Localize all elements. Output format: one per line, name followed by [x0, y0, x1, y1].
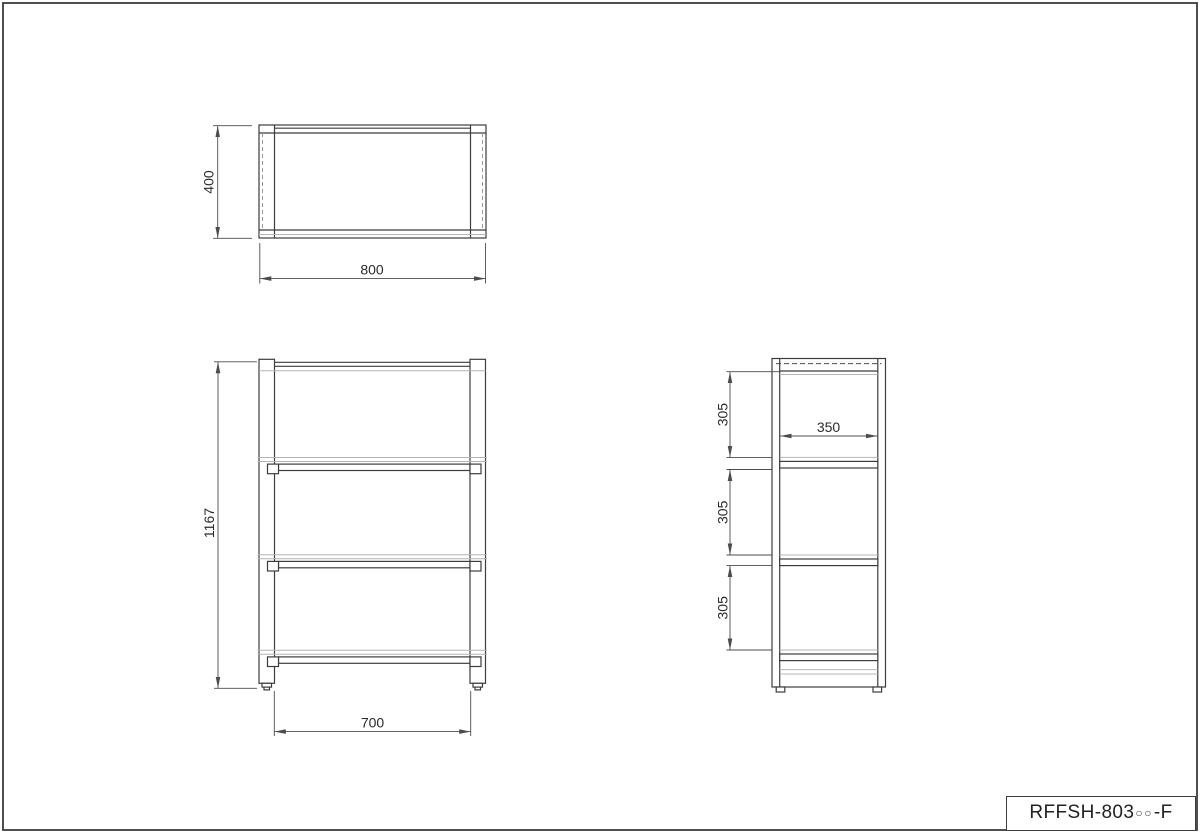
side-view [772, 359, 886, 693]
dim-side-depth: 350 [780, 419, 877, 436]
shelf-bracket [470, 657, 481, 667]
shelf [258, 555, 488, 571]
dim-label-700: 700 [361, 715, 385, 731]
dim-front-height: 1167 [201, 362, 257, 689]
shelf [780, 555, 878, 566]
shelf-band [279, 464, 471, 470]
left-post [259, 359, 275, 683]
shelf-bracket [268, 464, 279, 474]
left-foot-pad [264, 687, 270, 690]
product-code-color-placeholder: ○○ [1135, 806, 1153, 820]
dim-label-400: 400 [201, 170, 217, 194]
dim-top-width: 800 [260, 243, 486, 284]
shelf [780, 457, 878, 468]
dim-label-305: 305 [715, 500, 731, 524]
top-view [259, 125, 486, 238]
dim-label-305: 305 [715, 403, 731, 427]
dim-label-305: 305 [715, 596, 731, 620]
top-view-outline [259, 125, 486, 238]
shelf-bracket [268, 561, 279, 571]
product-code-prefix: RFFSH-803 [1029, 802, 1134, 824]
dim-label-350: 350 [817, 419, 841, 435]
dim-label-1167: 1167 [201, 508, 217, 538]
shelf-band [279, 561, 471, 567]
drawing-sheet: 400 800 [0, 0, 1200, 833]
side-outline [772, 359, 886, 688]
right-post [470, 359, 486, 683]
shelf-band [279, 657, 471, 663]
dim-front-width: 700 [274, 691, 470, 736]
front-view [258, 359, 488, 690]
product-code-suffix: -F [1154, 802, 1173, 824]
shelf-band [780, 559, 878, 566]
shelf-bracket [470, 464, 481, 474]
title-block: RFFSH-803○○-F [1006, 796, 1196, 831]
shelf [258, 650, 488, 666]
shelf [780, 650, 878, 661]
shelf-band [780, 654, 878, 661]
left-foot [776, 687, 785, 692]
shelf [258, 458, 488, 474]
right-foot [873, 687, 882, 692]
sheet-border [3, 3, 1197, 830]
right-foot-pad [475, 687, 481, 690]
shelf-band [780, 461, 878, 468]
shelf-bracket [470, 561, 481, 571]
dim-side-spacing: 305 305 305 [715, 372, 780, 650]
shelf-bracket [268, 657, 279, 667]
dim-label-800: 800 [360, 262, 384, 278]
dim-top-depth: 400 [201, 126, 253, 239]
drawing-canvas: 400 800 [0, 0, 1200, 833]
